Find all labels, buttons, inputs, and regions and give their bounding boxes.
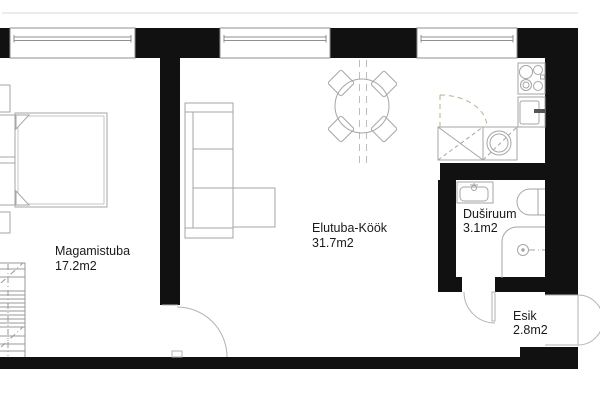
sofa-chaise [233, 188, 275, 227]
stove [518, 63, 545, 94]
floor-plan-drawing: Magamistuba 17.2m2 Elutuba-Köök 31.7m2 D… [0, 0, 600, 400]
dining-chair [328, 116, 355, 143]
kitchen [438, 63, 545, 160]
room-area: 3.1m2 [463, 221, 498, 235]
room-name: Duširuum [463, 207, 517, 221]
windows [10, 28, 517, 58]
ceiling-beam-dashed [360, 60, 367, 163]
room-area: 31.7m2 [312, 236, 354, 250]
living-room-furniture [185, 70, 397, 238]
dining-chair [328, 70, 355, 97]
staircase-rungs [0, 269, 25, 351]
window-2 [220, 28, 330, 58]
cabinet-door-dashed [440, 95, 487, 127]
wall-bottom-right-block [520, 347, 578, 369]
wall-top-right-corner [517, 28, 578, 58]
window-1 [10, 28, 135, 58]
wall-bathroom-left-foot [438, 277, 462, 292]
room-labels: Magamistuba 17.2m2 Elutuba-Köök 31.7m2 D… [55, 207, 548, 337]
room-name: Elutuba-Köök [312, 221, 388, 235]
label-dusiruum: Duširuum 3.1m2 [463, 207, 517, 235]
headboard-panel-top [0, 115, 15, 157]
kitchen-faucet [534, 109, 545, 113]
wall-bedroom-living [160, 58, 180, 305]
wall-bottom [0, 357, 578, 369]
room-name: Magamistuba [55, 244, 130, 258]
toilet [517, 189, 545, 215]
room-name: Esik [513, 309, 537, 323]
label-elutuba-kook: Elutuba-Köök 31.7m2 [312, 221, 388, 250]
wall-top-segment-3 [330, 28, 417, 58]
staircase [0, 263, 25, 357]
dining-chair [371, 116, 398, 143]
nightstand-bottom [0, 212, 10, 233]
kitchen-sink [518, 97, 545, 127]
wall-top-segment-2 [135, 28, 220, 58]
wall-bathroom-bottom-right [495, 277, 545, 292]
headboard-panel-bottom [0, 163, 15, 205]
wall-top-left-stub [0, 28, 10, 58]
nightstand-top [0, 85, 10, 112]
kitchen-counter [438, 127, 517, 160]
room-area: 17.2m2 [55, 259, 97, 273]
wall-bathroom-top [440, 163, 545, 180]
label-magamistuba: Magamistuba 17.2m2 [55, 244, 130, 273]
washbasin [457, 182, 493, 203]
wall-bathroom-left [438, 180, 456, 292]
floor-plan: Magamistuba 17.2m2 Elutuba-Köök 31.7m2 D… [0, 0, 600, 400]
bedroom-door [162, 305, 227, 357]
bathroom-door [464, 292, 495, 323]
sofa [185, 103, 275, 238]
bedroom-furniture [0, 85, 107, 357]
label-esik: Esik 2.8m2 [513, 309, 548, 337]
bed [15, 113, 107, 207]
shower [502, 227, 545, 278]
dining-set [328, 70, 398, 143]
room-area: 2.8m2 [513, 323, 548, 337]
dining-chair [371, 71, 398, 98]
window-3 [417, 28, 517, 58]
dining-table [335, 79, 389, 133]
wall-right [545, 58, 578, 295]
entrance-door [545, 295, 600, 345]
